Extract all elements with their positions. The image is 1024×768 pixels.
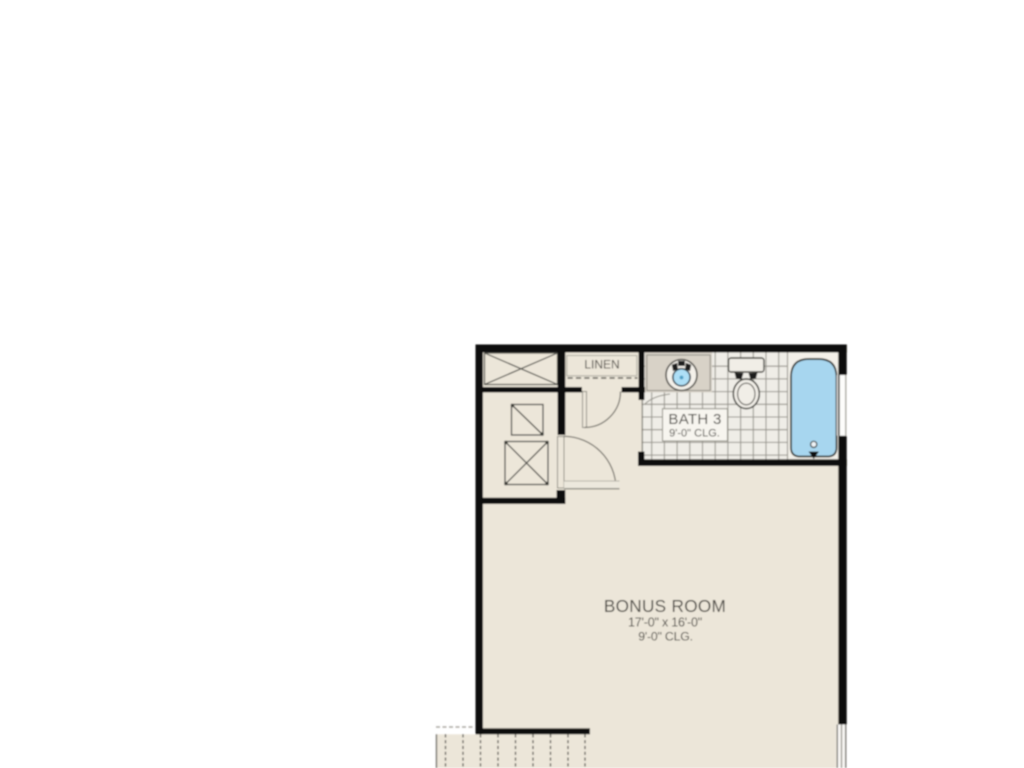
- svg-text:LINEN: LINEN: [584, 358, 619, 372]
- svg-text:17'-0" x 16'-0": 17'-0" x 16'-0": [628, 615, 702, 629]
- svg-text:BONUS ROOM: BONUS ROOM: [604, 596, 726, 616]
- svg-text:9'-0" CLG.: 9'-0" CLG.: [638, 630, 693, 644]
- svg-text:9'-0" CLG.: 9'-0" CLG.: [669, 428, 720, 440]
- svg-text:BATH 3: BATH 3: [668, 411, 721, 428]
